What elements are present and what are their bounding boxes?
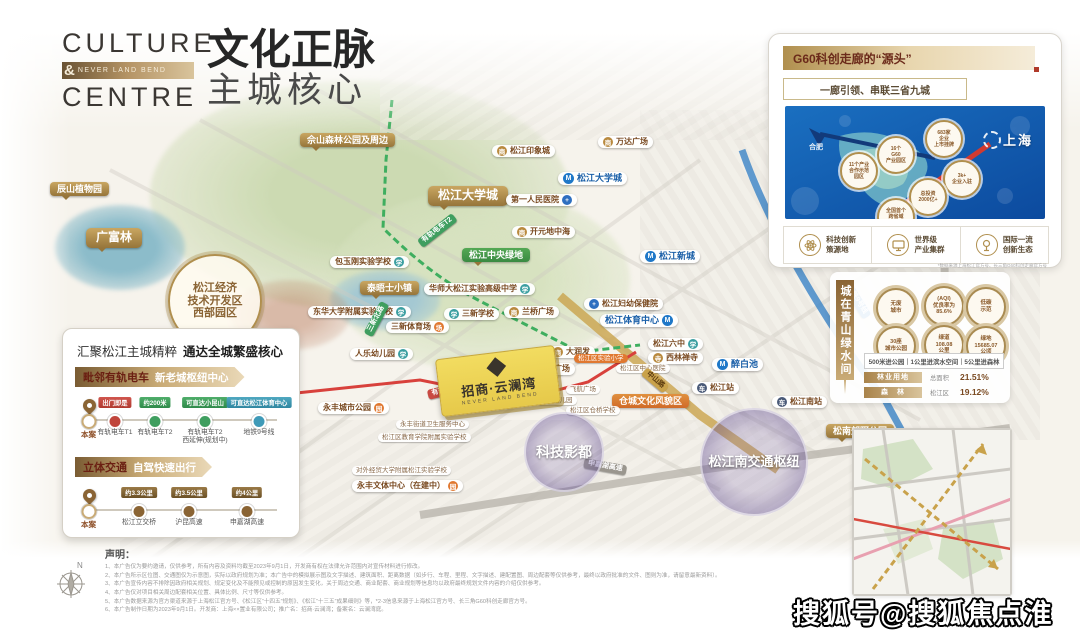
- g60-feature-1-text: 科技创新策源地: [826, 235, 856, 255]
- logo-band-bar: & NEVER LAND BEND: [62, 62, 194, 79]
- g60-title-bar: G60科创走廊的“源头”: [783, 46, 1035, 70]
- map-badge-label: 松江南站: [790, 397, 822, 406]
- stop-badge: 可直达松江体育中心: [227, 397, 292, 408]
- tree-icon: [976, 234, 998, 256]
- metro-icon: M: [563, 173, 574, 184]
- compass-icon: N: [55, 560, 89, 605]
- brand-logo: CULTURE & NEVER LAND BEND CENTRE: [62, 28, 216, 113]
- stop-badge: 出门即是: [98, 397, 131, 408]
- metro-icon: M: [717, 359, 728, 370]
- logo-centre: CENTRE: [62, 82, 216, 113]
- g60-stat-circle: 683家 企业 上市挂牌: [925, 120, 963, 158]
- stadium-icon: 场: [434, 322, 444, 332]
- map-badge-label: 仓城文化风貌区: [619, 396, 682, 406]
- hospital-icon: +: [589, 299, 599, 309]
- map-badge: 仓城文化风貌区: [612, 394, 689, 408]
- disclaimer-line: 2、本广告所示区位图、交通图仅为示意图，实际以政府规划为准；本广告中的模拟展示图…: [105, 572, 745, 581]
- school-icon: 学: [394, 257, 404, 267]
- mall-icon: 商: [603, 137, 613, 147]
- map-badge-label: 佘山森林公园及周边: [307, 135, 388, 145]
- origin-dot: [82, 414, 97, 429]
- map-badge-label: 松江站: [710, 383, 734, 392]
- eco-bar: 林业用地总面积21.51%: [864, 371, 1002, 383]
- eco-vertical-title: 城在青山绿水间: [836, 280, 854, 380]
- stop-name: 申嘉湖高速: [230, 519, 264, 527]
- origin-label: 本案: [81, 519, 96, 530]
- disclaimer: 声明： 1、本广告仅为要约邀请，仅供参考，所有内容及资料均截至2023年9月1日…: [105, 546, 745, 615]
- school-icon: 学: [520, 284, 530, 294]
- main-title-line2: 主城核心: [207, 72, 375, 111]
- g60-map-graphic: 683家 企业 上市挂牌16个 G60 产业园区11个产业 合作示范 园区3k+…: [785, 106, 1045, 219]
- eco-distance-line: 500米进公园｜1公里进滨水空间｜5公里进森林: [864, 353, 1004, 369]
- map-badge-label: 飞航广场: [570, 386, 596, 393]
- map-badge: 商松江印象城: [492, 145, 555, 157]
- origin-pin-icon: [80, 396, 98, 414]
- stop-dot: [108, 414, 123, 429]
- eco-bar-value: 19.12%: [960, 387, 989, 397]
- map-badge: 学三新学校: [444, 308, 499, 320]
- temple-icon: 寺: [653, 353, 663, 363]
- map-badge-label: 对外经贸大学附属松江实验学校: [356, 467, 447, 474]
- eco-bar-value: 21.51%: [960, 372, 989, 382]
- map-badge-label: 松江区教育学院附属实验学校: [382, 434, 467, 441]
- transit-panel: 汇聚松江主城精粹通达全城繁盛核心 毗邻有轨电车新老城枢纽中心本案出门即是有轨电车…: [62, 328, 300, 538]
- map-badge: 佘山森林公园及周边: [300, 133, 395, 147]
- map-badge: 对外经贸大学附属松江实验学校: [352, 466, 451, 475]
- map-badge-label: 第一人民医院: [511, 195, 559, 204]
- map-badge: 车松江南站: [772, 396, 827, 408]
- mall-icon: 商: [509, 307, 519, 317]
- stop-badge: 约3.3公里: [121, 487, 157, 498]
- svg-text:N: N: [77, 561, 83, 570]
- map-badge: 松江区教育学院附属实验学校: [378, 433, 471, 442]
- g60-hefei-label: 合肥: [809, 142, 823, 152]
- map-badge-label: 三新学校: [462, 309, 494, 318]
- g60-title: G60科创走廊的“源头”: [793, 50, 912, 67]
- metro-icon: M: [662, 315, 673, 326]
- map-badge-label: 兰桥广场: [522, 307, 554, 316]
- mall-icon: 商: [517, 227, 527, 237]
- metro-icon: M: [645, 251, 656, 262]
- disclaimer-line: 3、本广告宣传内容不排除因政府相关规划、规定变化及不能预见或控制的原因发生变化，…: [105, 580, 745, 589]
- hospital-icon: +: [562, 195, 572, 205]
- map-badge-label: 三新体育场: [391, 322, 431, 331]
- map-badge: 泰晤士小镇: [360, 281, 419, 295]
- map-badge: M醉白池: [712, 358, 763, 371]
- map-badge-label: 人乐幼儿园: [355, 349, 395, 358]
- train-icon: 车: [697, 383, 707, 393]
- g60-stat-circle: 16个 G60 产业园区: [877, 136, 915, 174]
- inset-planning-map: [852, 428, 1012, 596]
- g60-stat-circle: 总投资 2000亿+: [909, 178, 947, 216]
- banner-rest: 自驾快速出行: [133, 460, 196, 475]
- map-badge: 松江南交通枢纽: [700, 408, 808, 516]
- map-badge: 松江区实验小学: [574, 354, 628, 363]
- transit-banner: 立体交通自驾快速出行: [75, 457, 212, 477]
- map-badge: 寺西林禅寺: [648, 352, 703, 364]
- stop-name: 地铁9号线: [244, 429, 275, 437]
- map-badge-label: 松江大学城: [438, 189, 498, 203]
- eco-panel: 城在青山绿水间 无废 城市(AQI) 优良率为 85.6%低碳 示范30座 城市…: [830, 272, 1010, 403]
- map-badge: 车松江站: [692, 382, 739, 394]
- map-badge: 学东华大学附属实验学校: [308, 306, 411, 318]
- park-icon: 园: [374, 403, 384, 413]
- origin-pin-icon: [80, 486, 98, 504]
- map-badge: 松江大学城: [428, 186, 508, 206]
- g60-feature-row: 科技创新策源地 世界级产业集群 国际一流创新生态: [783, 226, 1049, 264]
- eco-stat-circle: (AQI) 优良率为 85.6%: [924, 286, 964, 326]
- map-badge-label: 科技影都: [536, 444, 592, 460]
- map-badge: 辰山植物园: [50, 182, 109, 196]
- monitor-icon: [887, 234, 909, 256]
- stop-dot: [198, 414, 213, 429]
- map-badge-label: 有轨电车T2: [421, 216, 454, 245]
- watermark-text: 搜狐号@搜狐焦点淮安站: [793, 592, 1080, 635]
- map-badge-label: 松江南交通枢纽: [708, 455, 799, 470]
- map-badge: 商万达广场: [598, 136, 653, 148]
- stop-dot: [182, 504, 197, 519]
- map-badge-label: 松江中央绿地: [469, 250, 523, 260]
- map-badge: 场三新体育场: [386, 321, 449, 333]
- map-badge: M松江大学城: [558, 172, 627, 185]
- map-badge-label: 西林禅寺: [666, 353, 698, 362]
- disclaimer-lines: 1、本广告仅为要约邀请，仅供参考，所有内容及资料均截至2023年9月1日，开发商…: [105, 563, 745, 615]
- eco-bar: 森 林松江区19.12%: [864, 386, 1002, 398]
- mall-icon: 商: [497, 146, 507, 156]
- disclaimer-line: 4、本广告仅对项目相关周边配套相关位置、具体比例、尺寸等仅供参考。: [105, 589, 745, 598]
- g60-feature-1: 科技创新策源地: [784, 227, 872, 263]
- banner-bold: 立体交通: [83, 459, 127, 475]
- map-badge-label: 华师大松江实验高级中学: [429, 284, 517, 293]
- disclaimer-line: 1、本广告仅为要约邀请，仅供参考，所有内容及资料均截至2023年9月1日，开发商…: [105, 563, 745, 572]
- eco-bar-scope: 总面积: [930, 373, 960, 382]
- eco-bars: 林业用地总面积21.51%森 林松江区19.12%: [864, 371, 1002, 401]
- map-badge-label: 松江六中: [653, 339, 685, 348]
- eco-bar-scope: 松江区: [930, 388, 960, 397]
- map-badge: M松江新城: [640, 250, 700, 263]
- school-icon: 学: [449, 309, 459, 319]
- atom-icon: [799, 234, 821, 256]
- school-icon: 学: [688, 339, 698, 349]
- stop-dot: [132, 504, 147, 519]
- map-badge-label: 辰山植物园: [57, 184, 102, 194]
- map-badge-label: 松江经济 技术开发区 西部园区: [188, 282, 243, 320]
- g60-feature-3-text: 国际一流创新生态: [1003, 235, 1033, 255]
- g60-footnote: *数据来源上海松江官方号、长三角G60科创走廊官方号: [938, 263, 1047, 269]
- logo-culture: CULTURE: [62, 28, 216, 59]
- map-badge: 广富林: [86, 228, 142, 248]
- map-badge: 学包玉刚实验学校: [330, 256, 409, 268]
- stop-name: 有轨电车T1: [97, 429, 132, 437]
- transit-banner: 毗邻有轨电车新老城枢纽中心: [75, 367, 245, 387]
- map-badge: 园永丰文体中心（在建中）: [352, 480, 463, 492]
- stop-name: 沪昆高速: [175, 519, 202, 527]
- g60-feature-3: 国际一流创新生态: [961, 227, 1048, 263]
- logo-ampersand: &: [64, 62, 75, 79]
- map-badge-label: 松江妇幼保健院: [602, 299, 658, 308]
- poster-stage: 佘山森林公园及周边辰山植物园广富林松江大学城泰晤士小镇松南郊野公园松江中央绿地仓…: [0, 0, 1080, 635]
- main-title-line1: 文化正脉: [207, 28, 375, 72]
- g60-feature-2: 世界级产业集群: [872, 227, 960, 263]
- disclaimer-line: 6、本广告制作日期为2023年9月1日。开发商：上海××置业有限公司；推广名：招…: [105, 606, 745, 615]
- stop-dot: [240, 504, 255, 519]
- origin-label: 本案: [81, 429, 96, 440]
- map-badge-label: 永丰街道卫生服务中心: [400, 421, 465, 428]
- map-badge-label: 开元地中海: [530, 227, 570, 236]
- school-icon: 学: [396, 307, 406, 317]
- main-title: 文化正脉 主城核心: [207, 28, 375, 111]
- map-badge-label: 松江体育中心: [605, 315, 659, 325]
- map-badge-label: 松江印象城: [510, 146, 550, 155]
- origin-dot: [82, 504, 97, 519]
- g60-panel: G60科创走廊的“源头” 一廊引领、串联三省九城: [768, 33, 1062, 268]
- map-badge-label: 万达广场: [616, 137, 648, 146]
- map-badge: 学人乐幼儿园: [350, 348, 413, 360]
- map-badge-label: 中山路: [644, 371, 665, 391]
- map-badge: +松江妇幼保健院: [584, 298, 663, 310]
- banner-bold: 毗邻有轨电车: [83, 369, 149, 385]
- map-badge-label: 包玉刚实验学校: [335, 257, 391, 266]
- map-badge: M松江体育中心: [600, 314, 678, 327]
- park-icon: 园: [448, 481, 458, 491]
- stop-dot: [148, 414, 163, 429]
- g60-subtitle: 一廊引领、串联三省九城: [783, 78, 967, 100]
- stop-name: 有轨电车T2: [137, 429, 172, 437]
- disclaimer-title: 声明：: [105, 546, 745, 561]
- map-badge-label: 广富林: [96, 231, 132, 245]
- eco-stat-circle: 无废 城市: [876, 288, 916, 328]
- eco-bar-label: 森 林: [864, 387, 922, 398]
- map-badge: 科技影都: [524, 412, 604, 492]
- banner-rest: 新老城枢纽中心: [155, 370, 229, 385]
- school-icon: 学: [398, 349, 408, 359]
- train-icon: 车: [777, 397, 787, 407]
- stop-badge: 约4公里: [232, 487, 262, 498]
- map-badge: 学松江六中: [648, 338, 703, 350]
- map-badge: 飞航广场: [566, 385, 600, 394]
- transit-panel-title: 汇聚松江主城精粹通达全城繁盛核心: [77, 341, 283, 360]
- g60-stat-circle: 3k+ 企业入驻: [943, 160, 981, 198]
- map-badge-label: 醉白池: [731, 359, 758, 369]
- eco-stat-circle: 低碳 示范: [966, 287, 1006, 327]
- map-badge: 学华师大松江实验高级中学: [424, 283, 535, 295]
- disclaimer-line: 5、本广告数据来源为官方渠道来源于上海松江官方号、《松江区“十四五”规划》、《松…: [105, 598, 745, 607]
- g60-feature-2-text: 世界级产业集群: [914, 235, 944, 255]
- map-badge: +第一人民医院: [506, 194, 577, 206]
- stop-name: 松江立交桥: [122, 519, 156, 527]
- map-badge-label: 松江新城: [659, 251, 695, 261]
- stop-name: 有轨电车T2 西延伸(规划中): [182, 429, 227, 446]
- map-badge-label: 泰晤士小镇: [367, 283, 412, 293]
- map-badge: 松江中央绿地: [462, 248, 530, 262]
- map-badge-label: 松江区实验小学: [578, 355, 624, 362]
- stop-dot: [252, 414, 267, 429]
- logo-band-text: NEVER LAND BEND: [78, 67, 167, 74]
- map-badge: 商兰桥广场: [504, 306, 559, 318]
- map-badge: 永丰街道卫生服务中心: [396, 420, 469, 429]
- g60-stat-circle: 11个产业 合作示范 园区: [840, 152, 878, 190]
- map-badge: 商开元地中海: [512, 226, 575, 238]
- map-badge-label: 松江大学城: [577, 173, 622, 183]
- map-badge: 有轨电车T2: [417, 213, 458, 248]
- stop-badge: 约200米: [139, 397, 170, 408]
- stop-badge: 可直达小昆山: [182, 397, 228, 408]
- map-badge: 园永丰城市公园: [318, 402, 389, 414]
- map-badge-label: 永丰文体中心（在建中）: [357, 481, 445, 490]
- g60-shanghai-label: 上海: [983, 130, 1033, 149]
- stop-badge: 约3.5公里: [171, 487, 207, 498]
- project-logo-icon: [486, 357, 506, 377]
- map-badge-label: 永丰城市公园: [323, 403, 371, 412]
- eco-bar-label: 林业用地: [864, 372, 922, 383]
